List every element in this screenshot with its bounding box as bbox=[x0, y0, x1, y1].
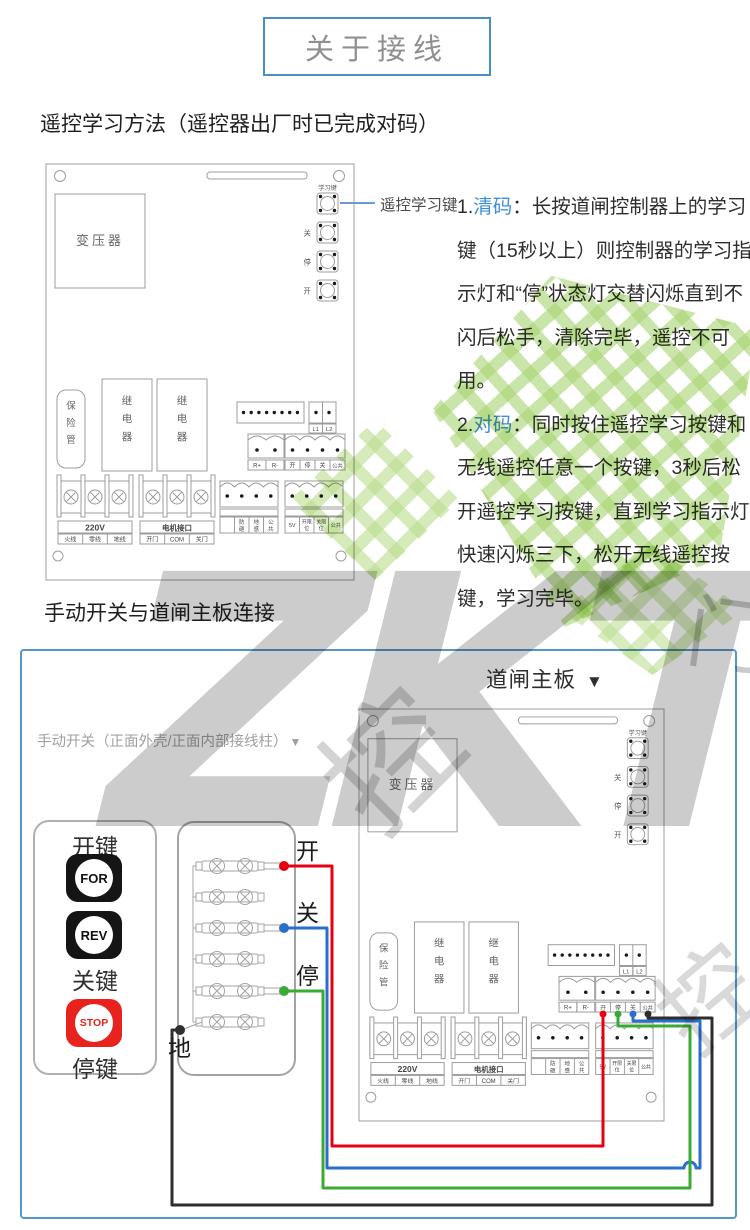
wire-open-red bbox=[284, 866, 603, 1146]
callout-line bbox=[340, 202, 375, 204]
page-title-text: 关于接线 bbox=[305, 26, 449, 68]
section1-heading: 遥控学习方法（遥控器出厂时已完成对码） bbox=[40, 108, 439, 138]
wire-close-blue bbox=[284, 928, 700, 1168]
wire-label-stop: 停 bbox=[296, 963, 319, 989]
board-stop-dot bbox=[615, 1011, 622, 1018]
controller-board-diagram bbox=[45, 163, 355, 581]
open-wire-dot bbox=[279, 861, 289, 871]
board-common-dot bbox=[645, 1011, 652, 1018]
instruction-step: 2.对码：同时按住遥控学习按键和无线遥控任意一个按键，3秒后松开遥控学习按键，直… bbox=[457, 404, 750, 622]
ground-wire-dot bbox=[175, 1025, 185, 1035]
wire-label-open: 开 bbox=[296, 838, 319, 864]
board-close-dot bbox=[630, 1011, 637, 1018]
stop-wire-dot bbox=[279, 986, 289, 996]
wire-label-ground: 地 bbox=[168, 1035, 191, 1061]
wiring-overlay: 开 关 停 地 bbox=[0, 640, 750, 1230]
instruction-step: 1.清码：长按道闸控制器上的学习键（15秒以上）则控制器的学习指示灯和“停”状态… bbox=[457, 186, 750, 404]
remote-learn-key-label: 遥控学习键 bbox=[380, 193, 458, 215]
page-title: 关于接线 bbox=[263, 17, 491, 76]
wire-stop-green bbox=[284, 991, 690, 1188]
close-wire-dot bbox=[279, 923, 289, 933]
manual-page: 变压器 学习键 关 停 bbox=[0, 0, 750, 1230]
switch-terminal-block bbox=[178, 822, 295, 1075]
instruction-text: 1.清码：长按道闸控制器上的学习键（15秒以上）则控制器的学习指示灯和“停”状态… bbox=[457, 186, 750, 621]
keyword-pair-code: 对码 bbox=[473, 414, 512, 436]
wire-ground-black bbox=[172, 1014, 712, 1205]
keyword-clear-code: 清码 bbox=[473, 196, 512, 218]
section2-heading: 手动开关与道闸主板连接 bbox=[44, 597, 275, 627]
board-open-dot bbox=[600, 1011, 607, 1018]
wire-label-close: 关 bbox=[296, 900, 319, 926]
